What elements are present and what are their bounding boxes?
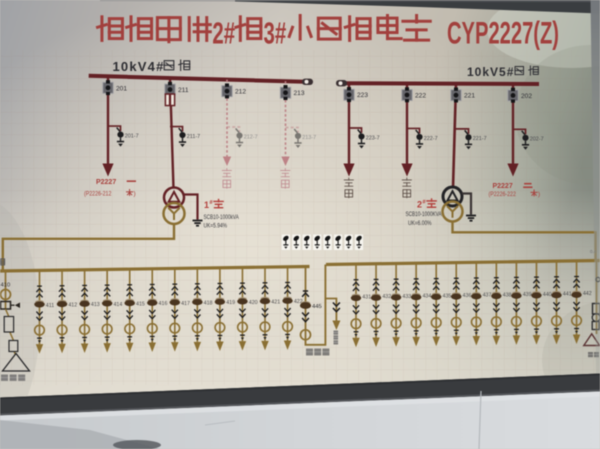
svg-text:): ) <box>538 191 540 198</box>
svg-text:201-7: 201-7 <box>125 133 139 139</box>
svg-text:440: 440 <box>543 292 552 298</box>
svg-text:221: 221 <box>464 93 475 100</box>
svg-text:202-7: 202-7 <box>530 137 544 143</box>
svg-text:420: 420 <box>249 300 258 306</box>
svg-text:421: 421 <box>271 300 280 306</box>
svg-text:431: 431 <box>362 294 371 300</box>
svg-text:202: 202 <box>521 93 532 100</box>
svg-text:433: 433 <box>402 294 411 300</box>
svg-text:#: # <box>210 200 213 206</box>
svg-text:222: 222 <box>415 92 426 99</box>
svg-text:223: 223 <box>357 92 368 99</box>
svg-text:211: 211 <box>178 87 189 94</box>
svg-text:2#: 2# <box>212 15 235 50</box>
svg-text:212-7: 212-7 <box>244 134 258 140</box>
svg-text:223-7: 223-7 <box>366 135 380 141</box>
svg-text:1: 1 <box>204 200 209 210</box>
svg-text:): ) <box>134 191 136 198</box>
svg-text:213-7: 213-7 <box>302 135 316 141</box>
svg-text:SCB10-1000kVA: SCB10-1000kVA <box>204 214 239 221</box>
svg-text:(P2226-222: (P2226-222 <box>489 192 516 199</box>
svg-text:211-7: 211-7 <box>187 134 200 140</box>
svg-text:#: # <box>423 200 426 206</box>
svg-text:222-7: 222-7 <box>424 136 438 142</box>
svg-text:201: 201 <box>116 85 127 92</box>
svg-text:212: 212 <box>235 89 246 96</box>
svg-text:439: 439 <box>523 292 532 298</box>
svg-text:P2227: P2227 <box>493 181 513 190</box>
svg-text:3#: 3# <box>264 15 287 50</box>
svg-text:UK=5.94%: UK=5.94% <box>204 223 228 230</box>
svg-text:434: 434 <box>422 294 431 300</box>
svg-text:UK=6.00%: UK=6.00% <box>408 221 432 228</box>
svg-text:437: 437 <box>483 293 492 299</box>
svg-text:SCB10-1000KVA: SCB10-1000KVA <box>406 211 442 218</box>
svg-text:415: 415 <box>136 302 145 308</box>
svg-text:410: 410 <box>1 283 11 289</box>
svg-text:435: 435 <box>443 293 452 299</box>
svg-text:213: 213 <box>294 90 305 97</box>
svg-text:2: 2 <box>417 200 422 210</box>
svg-text:412: 412 <box>68 302 77 308</box>
svg-text:418: 418 <box>204 301 213 307</box>
svg-text:10kV5#: 10kV5# <box>467 65 514 79</box>
svg-text:416: 416 <box>159 301 168 307</box>
svg-text:CYP2227(Z): CYP2227(Z) <box>447 15 559 51</box>
svg-text:411: 411 <box>46 303 54 309</box>
svg-text:432: 432 <box>382 294 391 300</box>
svg-text:10kV4#: 10kV4# <box>113 59 165 74</box>
svg-text:414: 414 <box>113 302 122 308</box>
svg-text:(P2226-212: (P2226-212 <box>84 191 111 198</box>
svg-text:445: 445 <box>312 304 323 310</box>
svg-text:417: 417 <box>181 301 190 307</box>
svg-text:441: 441 <box>563 292 572 298</box>
svg-text:436: 436 <box>463 293 472 299</box>
svg-text:442: 442 <box>583 291 592 297</box>
svg-text:413: 413 <box>91 302 100 308</box>
svg-text:419: 419 <box>226 300 235 306</box>
svg-text:438: 438 <box>503 292 512 298</box>
svg-text:P2227: P2227 <box>96 177 116 186</box>
svg-text:221-7: 221-7 <box>473 136 487 142</box>
